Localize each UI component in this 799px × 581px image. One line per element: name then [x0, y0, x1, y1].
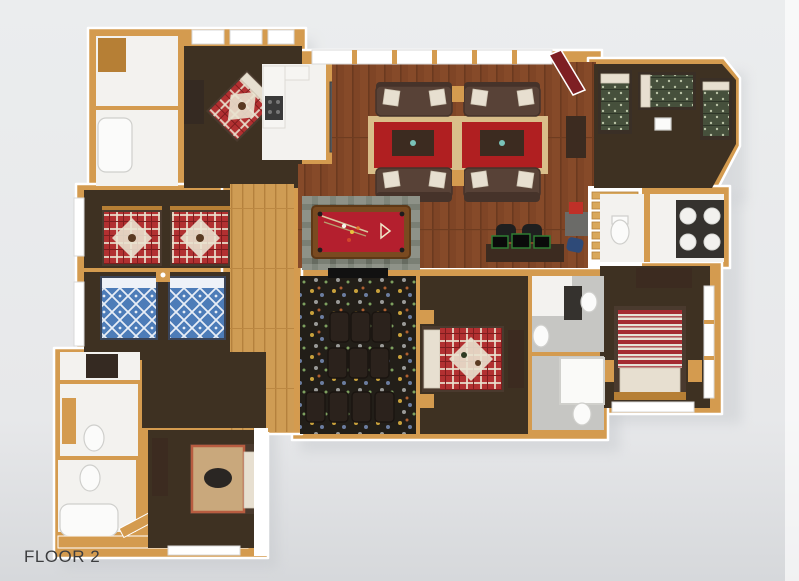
recliner-seat — [372, 312, 391, 342]
stove-burner — [268, 100, 272, 104]
recliner-seat — [306, 392, 325, 422]
bunk-bed-middle — [638, 72, 696, 110]
room-bathroom-double-vanity — [600, 194, 724, 262]
quilt-moose-motif — [128, 234, 136, 242]
bed-pillows — [620, 368, 680, 394]
recliner-seat — [351, 312, 370, 342]
pool-ball — [350, 230, 354, 234]
toilet — [581, 292, 597, 312]
monitor — [534, 236, 550, 248]
pool-table-felt — [318, 212, 404, 252]
twin-bed-blue — [100, 276, 158, 340]
side-table — [452, 170, 464, 186]
cue-ball — [342, 224, 346, 228]
toilet — [533, 325, 549, 347]
dresser — [86, 354, 118, 378]
floorplan-rendering — [0, 0, 799, 581]
sofa-pillow — [517, 89, 534, 106]
side-table — [452, 86, 464, 102]
recliner-seat — [330, 312, 349, 342]
vanity-sink — [704, 208, 720, 224]
window — [74, 282, 84, 346]
sofa-pillow — [471, 171, 488, 188]
window-mullion — [512, 50, 517, 64]
dresser — [152, 438, 168, 496]
room-bathroom-top-left — [96, 36, 178, 186]
hall-carpet — [142, 352, 266, 428]
monitor — [512, 234, 530, 248]
bed-pillows — [424, 330, 440, 388]
window-mullion — [704, 356, 714, 360]
twin-bed-blue — [168, 276, 226, 340]
table-centerpiece — [499, 140, 505, 146]
room-bathroom-left-lower — [58, 460, 136, 536]
window-mullion — [392, 50, 397, 64]
room-bedroom-bottom — [148, 428, 268, 556]
recliner-seat — [375, 392, 394, 422]
media-console — [566, 116, 586, 158]
recliner-seat — [352, 392, 371, 422]
pool-pocket — [318, 212, 323, 217]
pool-pocket — [400, 212, 405, 217]
window — [612, 402, 694, 412]
bed-pillow — [102, 278, 156, 288]
window-mullion — [704, 320, 714, 324]
twin-bed-red — [102, 206, 162, 266]
lamp — [161, 273, 166, 278]
nightstand — [420, 394, 434, 408]
exterior-wall — [254, 428, 268, 556]
window — [230, 30, 262, 44]
window — [168, 546, 240, 555]
seating-group-b — [456, 82, 548, 202]
media-dresser — [508, 330, 524, 388]
window — [268, 30, 294, 44]
movie-screen — [328, 268, 388, 278]
bed-pillow — [641, 75, 650, 107]
toilet — [573, 403, 591, 425]
room-bedroom-center — [420, 276, 528, 434]
room-bathroom-center-lower — [532, 356, 604, 430]
window-mullion — [472, 50, 477, 64]
room-bunk — [594, 64, 736, 188]
quilt-moose-motif — [196, 234, 204, 242]
recliner-seat — [329, 392, 348, 422]
toilet — [611, 220, 629, 244]
sofa-pillow — [429, 89, 446, 106]
closet-cabinet — [98, 38, 126, 72]
vanity — [62, 398, 76, 444]
window — [192, 30, 224, 44]
sofa-pillow — [471, 89, 488, 106]
toilet — [84, 425, 104, 451]
quilt-bear-motif — [204, 468, 232, 488]
recliner-seat — [328, 348, 347, 378]
table-centerpiece — [410, 140, 416, 146]
sofa-pillow — [383, 171, 400, 188]
double-vanity — [676, 200, 724, 258]
sofa-backrest — [464, 192, 540, 202]
bed-pillow — [601, 74, 629, 83]
room-living — [298, 50, 596, 270]
vanity-sink — [680, 208, 696, 224]
quilt-tree-motif — [461, 352, 467, 358]
sofa-pillow — [517, 171, 534, 188]
seating-group-a — [368, 82, 458, 202]
room-bathroom-left-upper — [60, 384, 138, 456]
toilet — [80, 465, 100, 491]
sofa-pillow — [429, 171, 446, 188]
recliner-seat — [349, 348, 368, 378]
stove-burner — [276, 100, 280, 104]
pool-pocket — [318, 248, 323, 253]
recliner-seat — [370, 348, 389, 378]
headboard — [614, 392, 686, 400]
floor-label: FLOOR 2 — [24, 547, 100, 567]
side-desk — [565, 212, 591, 236]
room-bedroom-right — [600, 266, 714, 412]
sofa-pillow — [383, 89, 400, 106]
bunk-bed-left — [598, 70, 632, 134]
bed-pillow — [703, 82, 729, 90]
dresser — [184, 80, 204, 124]
shower — [560, 358, 604, 404]
room-bathroom-center-upper — [532, 276, 604, 352]
bed-pillow — [170, 278, 224, 288]
bed-quilt-striped — [618, 310, 682, 368]
bunk-bed-right — [700, 78, 732, 140]
quilt-moose-motif — [475, 360, 481, 366]
stove-burner — [268, 110, 272, 114]
dresser — [636, 268, 692, 288]
pool-ball — [347, 238, 351, 242]
window-mullion — [352, 50, 357, 64]
bathtub — [98, 118, 132, 172]
billiards-area — [302, 196, 420, 270]
vanity — [564, 286, 582, 320]
vanity-sink — [680, 234, 696, 250]
nightstand — [420, 310, 434, 324]
twin-bed-red — [170, 206, 230, 266]
window — [704, 286, 714, 398]
window-mullion — [432, 50, 437, 64]
vanity-sink — [704, 234, 720, 250]
window — [74, 198, 84, 256]
bathtub — [60, 504, 118, 536]
monitor — [492, 236, 508, 248]
room-theater — [300, 268, 416, 434]
nightstand — [688, 360, 702, 382]
pool-pocket — [400, 248, 405, 253]
stove — [265, 96, 283, 120]
stove-burner — [276, 110, 280, 114]
pool-ball — [356, 226, 360, 230]
floorplan-canvas: FLOOR 2 — [0, 0, 799, 581]
red-box — [569, 202, 583, 214]
partition-wall — [644, 194, 650, 262]
night-table — [655, 118, 671, 130]
